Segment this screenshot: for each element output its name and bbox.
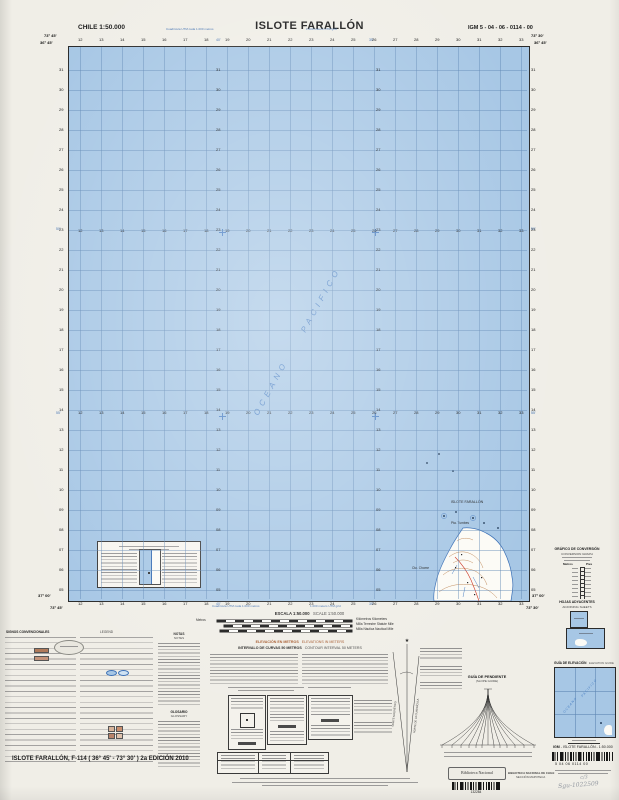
interval-en: CONTOUR INTERVAL 50 METERS bbox=[305, 646, 362, 650]
utm-row-label-right: 30 bbox=[531, 88, 535, 92]
utm-grid-h-line bbox=[69, 470, 527, 471]
legend-title-en: LEGEND bbox=[100, 631, 113, 634]
utm-col-label-top: 15 bbox=[141, 38, 145, 42]
utm-col-label-top: 16 bbox=[162, 38, 166, 42]
conversion-note-2 bbox=[564, 560, 590, 561]
elevation-guide-box: OCEANO PACIFICO bbox=[554, 667, 616, 738]
utm-row-label-left: 24 bbox=[59, 208, 63, 212]
elevation-guide-title-es: GUÍA DE ELEVACIÓN bbox=[554, 662, 586, 665]
utm-row-label-left: 22 bbox=[59, 248, 63, 252]
utm-col-label-interior: 27 bbox=[393, 411, 397, 415]
utm-grid-h-line bbox=[69, 450, 527, 451]
utm-row-label-right: 06 bbox=[531, 568, 535, 572]
true-north-star: ★ bbox=[405, 638, 410, 644]
azimuth-note-placeholder bbox=[354, 700, 392, 716]
utm-row-label-left: 23 bbox=[59, 228, 63, 232]
user-note-line-3 bbox=[262, 785, 388, 786]
utm-col-label-bottom: 19 bbox=[225, 602, 229, 606]
scalebar-nautical-label: Milla Náutica Nautical Mile bbox=[356, 628, 393, 631]
utm-col-label-interior: 29 bbox=[435, 411, 439, 415]
utm-col-label-interior: 16 bbox=[162, 411, 166, 415]
eg-scalebar-label-placeholder bbox=[572, 740, 596, 741]
utm-grid-h-line bbox=[69, 410, 527, 411]
corner-bl-lat: 37° 00' bbox=[38, 594, 51, 598]
utm-row-label-interior: 15 bbox=[216, 388, 220, 392]
utm-row-label-interior: 20 bbox=[216, 288, 220, 292]
utm-row-label-interior: 07 bbox=[376, 548, 380, 552]
utm-grid-h-line bbox=[69, 390, 527, 391]
igm-footnote-1 bbox=[555, 770, 611, 771]
utm-grid-h-line bbox=[69, 430, 527, 431]
utm-col-label-top: 30 bbox=[456, 38, 460, 42]
utm-row-label-interior: 25 bbox=[376, 188, 380, 192]
slope-footnote-2 bbox=[444, 756, 532, 757]
utm-col-label-bottom: 23 bbox=[309, 602, 313, 606]
geodetic-box-right-text-placeholder bbox=[162, 553, 197, 583]
utm-row-label-right: 11 bbox=[531, 468, 535, 472]
box1-grid-diagram bbox=[240, 713, 255, 728]
utm-col-label-top: 13 bbox=[99, 38, 103, 42]
utm-grid-h-line bbox=[69, 310, 527, 311]
legend-road-symbol-2 bbox=[34, 656, 49, 661]
thumbnail-coast bbox=[151, 550, 160, 584]
utm-col-label-top: 28 bbox=[414, 38, 418, 42]
geodetic-box-title-placeholder bbox=[119, 546, 179, 547]
legend-lake-symbol-2 bbox=[118, 670, 129, 676]
utm-row-label-left: 09 bbox=[59, 508, 63, 512]
utm-row-label-left: 10 bbox=[59, 488, 63, 492]
eg-peninsula bbox=[604, 725, 612, 735]
interval-es: INTERVALO DE CURVAS 50 METROS bbox=[238, 646, 302, 650]
utm-row-label-right: 20 bbox=[531, 288, 535, 292]
adjoining-title-en: ADJOINING SHEETS bbox=[540, 606, 614, 609]
utm-row-label-interior: 08 bbox=[376, 528, 380, 532]
igm-barcode bbox=[552, 752, 614, 761]
utm-col-label-interior: 13 bbox=[99, 411, 103, 415]
utm-row-label-interior: 21 bbox=[376, 268, 380, 272]
adjoining-sheet-box-2 bbox=[566, 628, 605, 649]
utm-row-label-left: 17 bbox=[59, 348, 63, 352]
corner-tr-lon: 73° 30' bbox=[531, 34, 544, 38]
utm-col-label-top: 24 bbox=[330, 38, 334, 42]
legend-column-2-placeholder bbox=[80, 637, 153, 765]
slope-guide-title-en: (SLOPE GUIDE) bbox=[447, 680, 527, 683]
conversion-title-en: CONVERSION GRAPH bbox=[540, 553, 614, 556]
utm-row-label-left: 15 bbox=[59, 388, 63, 392]
utm-col-label-top: 29 bbox=[435, 38, 439, 42]
utm-col-label-interior: 18 bbox=[204, 411, 208, 415]
utm-row-label-right: 26 bbox=[531, 168, 535, 172]
utm-col-label-interior: 20 bbox=[246, 411, 250, 415]
minute-right-2: 55' bbox=[531, 412, 536, 416]
utm-col-label-top: 17 bbox=[183, 38, 187, 42]
utm-grid-h-line bbox=[69, 350, 527, 351]
utm-row-label-left: 20 bbox=[59, 288, 63, 292]
utm-col-label-bottom: 27 bbox=[393, 602, 397, 606]
utm-row-label-interior: 27 bbox=[216, 148, 220, 152]
utm-row-label-left: 16 bbox=[59, 368, 63, 372]
legend-building-symbol-3 bbox=[108, 733, 115, 739]
utm-grid-h-line bbox=[69, 150, 527, 151]
utm-row-label-interior: 14 bbox=[216, 408, 220, 412]
library-section-line: SECCIÓN MAPOTECA bbox=[516, 776, 545, 779]
utm-row-label-left: 11 bbox=[59, 468, 63, 472]
library-barcode bbox=[452, 782, 500, 790]
utm-col-label-bottom: 20 bbox=[246, 602, 250, 606]
legend-title-es: SIGNOS CONVENCIONALES bbox=[6, 631, 49, 634]
minute-left-2: 55' bbox=[56, 412, 61, 416]
utm-row-label-interior: 18 bbox=[216, 328, 220, 332]
utm-row-label-right: 09 bbox=[531, 508, 535, 512]
minute-bottom-1: 40' bbox=[216, 603, 221, 607]
utm-row-label-interior: 17 bbox=[216, 348, 220, 352]
utm-row-label-right: 25 bbox=[531, 188, 535, 192]
box1-example-bar bbox=[238, 742, 256, 745]
utm-row-label-interior: 10 bbox=[376, 488, 380, 492]
credits-text-left-placeholder bbox=[210, 654, 298, 684]
igm-sheet-name: - ISLOTE FARALLÓN - 1:50.000 bbox=[561, 745, 613, 749]
utm-row-label-left: 06 bbox=[59, 568, 63, 572]
utm-row-label-interior: 25 bbox=[216, 188, 220, 192]
box2-text2-placeholder bbox=[270, 731, 304, 741]
utm-row-label-right: 23 bbox=[531, 228, 535, 232]
utm-row-label-right: 15 bbox=[531, 388, 535, 392]
print-data-table bbox=[217, 752, 329, 774]
scalebar-km bbox=[217, 620, 352, 622]
utm-row-label-interior: 07 bbox=[216, 548, 220, 552]
utm-col-label-top: 20 bbox=[246, 38, 250, 42]
utm-row-label-interior: 26 bbox=[216, 168, 220, 172]
utm-col-label-bottom: 21 bbox=[267, 602, 271, 606]
utm-row-label-interior: 19 bbox=[376, 308, 380, 312]
utm-row-label-interior: 22 bbox=[376, 248, 380, 252]
utm-row-label-interior: 12 bbox=[376, 448, 380, 452]
utm-row-label-interior: 29 bbox=[376, 108, 380, 112]
utm-row-label-interior: 05 bbox=[376, 588, 380, 592]
utm-col-label-top: 12 bbox=[78, 38, 82, 42]
legend-building-symbol-2 bbox=[116, 726, 123, 732]
utm-grid-h-line bbox=[69, 210, 527, 211]
elevation-es: ELEVACIÓN EN METROS bbox=[256, 640, 299, 644]
utm-row-label-right: 05 bbox=[531, 588, 535, 592]
utm-row-label-left: 12 bbox=[59, 448, 63, 452]
utm-row-label-interior: 14 bbox=[376, 408, 380, 412]
utm-col-label-bottom: 28 bbox=[414, 602, 418, 606]
utm-col-label-bottom: 29 bbox=[435, 602, 439, 606]
utm-row-label-interior: 31 bbox=[376, 68, 380, 72]
utm-row-label-interior: 31 bbox=[216, 68, 220, 72]
utm-grid-h-line bbox=[69, 270, 527, 271]
utm-col-label-interior: 15 bbox=[141, 411, 145, 415]
utm-col-label-bottom: 17 bbox=[183, 602, 187, 606]
legend-lake-symbol bbox=[106, 670, 117, 676]
utm-col-label-top: 33 bbox=[519, 38, 523, 42]
utm-row-label-left: 30 bbox=[59, 88, 63, 92]
utm-col-label-interior: 21 bbox=[267, 411, 271, 415]
utm-grid-h-line bbox=[69, 190, 527, 191]
utm-row-label-interior: 16 bbox=[216, 368, 220, 372]
utm-grid-h-line bbox=[69, 590, 527, 591]
utm-col-label-interior: 24 bbox=[330, 411, 334, 415]
adjoining-sheet-2-coast bbox=[575, 639, 587, 646]
table-cell-text-placeholder-2 bbox=[262, 755, 286, 771]
utm-row-label-right: 17 bbox=[531, 348, 535, 352]
utm-row-label-interior: 30 bbox=[376, 88, 380, 92]
utm-row-label-left: 08 bbox=[59, 528, 63, 532]
igm-footer-line: IGM - ISLOTE FARALLÓN - 1:50.000 bbox=[553, 746, 613, 750]
utm-row-label-interior: 06 bbox=[216, 568, 220, 572]
utm-grid-h-line bbox=[69, 70, 527, 71]
utm-col-label-bottom: 18 bbox=[204, 602, 208, 606]
notes-text-placeholder bbox=[158, 643, 200, 707]
utm-col-label-top: 18 bbox=[204, 38, 208, 42]
grid-note-en-bottom: 1.000 meters UTM grid bbox=[310, 605, 341, 608]
box3-example-bar bbox=[321, 719, 339, 722]
utm-col-label-bottom: 31 bbox=[477, 602, 481, 606]
utm-row-label-interior: 11 bbox=[216, 468, 220, 472]
slope-guide-fan bbox=[438, 685, 538, 749]
utm-row-label-interior: 09 bbox=[216, 508, 220, 512]
utm-grid-h-line bbox=[69, 490, 527, 491]
box1-text-placeholder bbox=[231, 698, 263, 710]
utm-row-label-interior: 18 bbox=[376, 328, 380, 332]
utm-col-label-interior: 32 bbox=[498, 411, 502, 415]
utm-row-label-left: 28 bbox=[59, 128, 63, 132]
conversion-left-unit: Metros bbox=[563, 563, 573, 566]
utm-row-label-right: 31 bbox=[531, 68, 535, 72]
elevation-en: ELEVATIONS IN METERS bbox=[302, 640, 345, 644]
utm-col-label-bottom: 33 bbox=[519, 602, 523, 606]
library-stamp-text: Biblioteca Nacional bbox=[449, 771, 505, 775]
igm-code-numbers: 5 04 06 0114 00 bbox=[555, 763, 588, 767]
utm-row-label-right: 12 bbox=[531, 448, 535, 452]
utm-col-label-bottom: 25 bbox=[351, 602, 355, 606]
box1-diagram-point bbox=[246, 719, 248, 721]
utm-row-label-left: 31 bbox=[59, 68, 63, 72]
igm-logo-text-placeholder bbox=[60, 646, 78, 647]
scalebar-left-label: Metros bbox=[196, 619, 206, 622]
table-divider-v2 bbox=[290, 753, 291, 773]
geodetic-box-left-text-placeholder bbox=[101, 553, 137, 583]
utm-col-label-top: 32 bbox=[498, 38, 502, 42]
utm-row-label-left: 21 bbox=[59, 268, 63, 272]
utm-row-label-interior: 09 bbox=[376, 508, 380, 512]
utm-col-label-bottom: 30 bbox=[456, 602, 460, 606]
utm-row-label-interior: 11 bbox=[376, 468, 380, 472]
conversion-right-unit: Pies bbox=[586, 563, 592, 566]
utm-col-label-top: 14 bbox=[120, 38, 124, 42]
notes-title-en: NOTES bbox=[158, 637, 200, 640]
corner-br-lat: 37° 00' bbox=[532, 594, 545, 598]
utm-row-label-interior: 19 bbox=[216, 308, 220, 312]
scalebar-nautical bbox=[220, 630, 352, 632]
azimuth-note-2-placeholder bbox=[354, 722, 392, 734]
eg-grid-h2 bbox=[555, 714, 615, 715]
utm-col-label-top: 19 bbox=[225, 38, 229, 42]
utm-col-label-interior: 19 bbox=[225, 411, 229, 415]
utm-grid-h-line bbox=[69, 170, 527, 171]
utm-row-label-interior: 06 bbox=[376, 568, 380, 572]
utm-col-label-top: 23 bbox=[309, 38, 313, 42]
utm-col-label-bottom: 26 bbox=[372, 602, 376, 606]
utm-grid-h-line bbox=[69, 330, 527, 331]
utm-row-label-left: 05 bbox=[59, 588, 63, 592]
legend-building-symbol-4 bbox=[116, 733, 123, 739]
handwriting-note-2: Sgu-1022509 bbox=[558, 781, 599, 790]
adjoining-sheet-box-1 bbox=[570, 611, 588, 628]
eg-ocean-label-1: OCEANO bbox=[563, 697, 578, 714]
igm-oval-logo bbox=[54, 640, 84, 655]
table-divider-v1 bbox=[258, 753, 259, 773]
geo-ref-box-3 bbox=[308, 695, 353, 740]
utm-col-label-bottom: 14 bbox=[120, 602, 124, 606]
utm-row-label-interior: 20 bbox=[376, 288, 380, 292]
box3-text2-placeholder bbox=[311, 725, 350, 736]
utm-col-label-top: 31 bbox=[477, 38, 481, 42]
utm-grid-h-line bbox=[69, 290, 527, 291]
corner-tr-lat: 36° 45' bbox=[534, 41, 547, 45]
elevation-guide-title-en: ELEVATION GUIDE bbox=[589, 662, 614, 665]
user-note-line-1 bbox=[240, 778, 410, 779]
utm-col-label-bottom: 22 bbox=[288, 602, 292, 606]
utm-col-label-interior: 17 bbox=[183, 411, 187, 415]
map-sheet: CHILE 1:50.000 ISLOTE FARALLÓN IGM 5 - 0… bbox=[0, 0, 619, 800]
utm-grid-h-line bbox=[69, 90, 527, 91]
utm-col-label-top: 25 bbox=[351, 38, 355, 42]
utm-row-label-right: 22 bbox=[531, 248, 535, 252]
utm-col-label-interior: 22 bbox=[288, 411, 292, 415]
utm-col-label-interior: 25 bbox=[351, 411, 355, 415]
legend-building-symbol bbox=[108, 726, 115, 732]
grid-ref-box-2 bbox=[267, 695, 307, 745]
utm-row-label-left: 18 bbox=[59, 328, 63, 332]
conversion-right-values-placeholder bbox=[585, 568, 591, 598]
utm-row-label-interior: 12 bbox=[216, 448, 220, 452]
eg-scalebar bbox=[568, 743, 600, 745]
utm-col-label-bottom: 32 bbox=[498, 602, 502, 606]
utm-row-label-right: 19 bbox=[531, 308, 535, 312]
grid-note-en-top: 1.000 meters UTM grid bbox=[306, 28, 337, 31]
box3-text-placeholder bbox=[311, 698, 350, 716]
convergence-note-placeholder bbox=[420, 648, 462, 660]
grid-note-es-top: Cuadrícula UTM cada 1.000 metros bbox=[166, 28, 214, 31]
utm-row-label-left: 13 bbox=[59, 428, 63, 432]
utm-row-label-right: 28 bbox=[531, 128, 535, 132]
ocean-label-1: OCEANO bbox=[252, 359, 290, 417]
scalebar-statute bbox=[224, 625, 352, 627]
utm-row-label-interior: 15 bbox=[376, 388, 380, 392]
utm-row-label-right: 14 bbox=[531, 408, 535, 412]
utm-row-label-right: 24 bbox=[531, 208, 535, 212]
utm-row-label-right: 16 bbox=[531, 368, 535, 372]
utm-row-label-interior: 24 bbox=[216, 208, 220, 212]
utm-grid-h-line bbox=[69, 550, 527, 551]
utm-row-label-interior: 21 bbox=[216, 268, 220, 272]
land-label-tumbes: Pta. Tumbes bbox=[451, 521, 469, 525]
utm-col-label-interior: 33 bbox=[519, 411, 523, 415]
elevation-heading: ELEVACIÓN EN METROS ELEVATIONS IN METERS bbox=[205, 641, 395, 645]
grid-ref-box-1 bbox=[228, 695, 266, 750]
utm-row-label-interior: 05 bbox=[216, 588, 220, 592]
utm-row-label-left: 07 bbox=[59, 548, 63, 552]
edition-line: ISLOTE FARALLÓN, F-114 ( 36° 45' - 73° 3… bbox=[12, 756, 189, 762]
ocean-label-2: PACIFICO bbox=[299, 266, 342, 334]
utm-row-label-right: 29 bbox=[531, 108, 535, 112]
utm-row-label-interior: 30 bbox=[216, 88, 220, 92]
user-note-line-2 bbox=[232, 782, 418, 783]
utm-row-label-right: 21 bbox=[531, 268, 535, 272]
utm-row-label-interior: 27 bbox=[376, 148, 380, 152]
utm-col-label-bottom: 16 bbox=[162, 602, 166, 606]
utm-row-label-interior: 23 bbox=[216, 228, 220, 232]
utm-row-label-right: 07 bbox=[531, 548, 535, 552]
eg-islet-dot bbox=[600, 722, 602, 724]
corner-br-lon: 73° 30' bbox=[526, 606, 539, 610]
utm-grid-h-line bbox=[69, 370, 527, 371]
table-cell-text-placeholder bbox=[221, 755, 255, 771]
minute-top-1: 40' bbox=[216, 39, 221, 43]
utm-row-label-interior: 16 bbox=[376, 368, 380, 372]
utm-col-label-interior: 30 bbox=[456, 411, 460, 415]
contour-interval-heading: INTERVALO DE CURVAS 50 METROS CONTOUR IN… bbox=[205, 647, 395, 651]
thumbnail-marker bbox=[148, 572, 150, 574]
utm-col-label-interior: 28 bbox=[414, 411, 418, 415]
scale-title-en: SCALE 1:50.000 bbox=[313, 611, 344, 616]
utm-col-label-top: 26 bbox=[372, 38, 376, 42]
conversion-note-1 bbox=[562, 557, 592, 558]
magnetic-north-label: NORTE MAGNÉTICO bbox=[390, 701, 398, 727]
scalebar-statute-label: Milla Terrestre Statute Mile bbox=[356, 623, 394, 626]
utm-col-label-bottom: 13 bbox=[99, 602, 103, 606]
utm-col-label-top: 27 bbox=[393, 38, 397, 42]
credits-text-right-placeholder bbox=[302, 654, 388, 684]
utm-grid-h-line bbox=[69, 510, 527, 511]
utm-row-label-interior: 28 bbox=[216, 128, 220, 132]
utm-row-label-interior: 13 bbox=[376, 428, 380, 432]
utm-col-label-top: 21 bbox=[267, 38, 271, 42]
slope-footnote-1 bbox=[444, 752, 532, 753]
geo-ref-header-placeholder bbox=[308, 687, 351, 688]
glossary-title-en: GLOSSARY bbox=[158, 715, 200, 718]
box2-example-bar bbox=[278, 725, 296, 728]
utm-row-label-right: 27 bbox=[531, 148, 535, 152]
igm-brand: IGM bbox=[553, 745, 560, 749]
utm-grid-h-line bbox=[69, 130, 527, 131]
library-stamp: Biblioteca Nacional bbox=[448, 767, 506, 780]
utm-grid-h-line bbox=[69, 250, 527, 251]
adjoining-sheet-2-label-placeholder bbox=[579, 633, 593, 634]
utm-row-label-left: 26 bbox=[59, 168, 63, 172]
utm-row-label-right: 13 bbox=[531, 428, 535, 432]
sheet-code-label: IGM 5 - 04 - 06 - 0114 - 00 bbox=[468, 26, 533, 32]
table-cell-text-placeholder-3 bbox=[294, 755, 324, 771]
grid-ref-header-placeholder bbox=[228, 687, 304, 688]
box2-text-placeholder bbox=[270, 698, 304, 722]
utm-col-label-top: 22 bbox=[288, 38, 292, 42]
utm-row-label-interior: 28 bbox=[376, 128, 380, 132]
utm-col-label-interior: 12 bbox=[78, 411, 82, 415]
utm-col-label-interior: 14 bbox=[120, 411, 124, 415]
scalebar-km-label: Kilómetros Kilometers bbox=[356, 618, 387, 621]
grid-north-label: NORTE DE LA CUADRÍCULA bbox=[412, 698, 420, 733]
corner-tl-lat: 36° 45' bbox=[40, 41, 53, 45]
utm-grid-h-line bbox=[69, 570, 527, 571]
utm-row-label-interior: 08 bbox=[216, 528, 220, 532]
utm-col-label-interior: 31 bbox=[477, 411, 481, 415]
utm-col-label-bottom: 24 bbox=[330, 602, 334, 606]
utm-col-label-bottom: 12 bbox=[78, 602, 82, 606]
utm-grid-h-line bbox=[69, 230, 527, 231]
